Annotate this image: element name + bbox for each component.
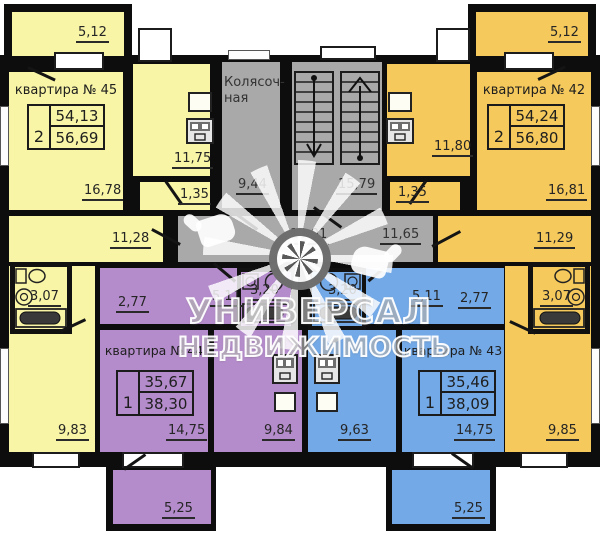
area-apt42-living: 16,81 — [546, 184, 587, 201]
window — [0, 348, 9, 424]
apt44-rooms-count: 1 — [118, 372, 140, 414]
window — [320, 46, 376, 60]
area-apt44-bath: 3,20 — [248, 284, 281, 301]
window — [0, 106, 9, 166]
area-apt43-kitchen: 9,63 — [338, 424, 371, 441]
apt45-total-area: 56,69 — [51, 127, 103, 148]
area-apt45-balcony: 5,12 — [76, 26, 109, 43]
window — [591, 106, 600, 166]
area-stairs: 15,79 — [336, 178, 377, 195]
area-apt44-living: 14,75 — [166, 424, 207, 441]
fridge-icon — [316, 392, 338, 412]
balcony-door-unit — [54, 52, 104, 70]
area-apt45-tambour: 1,35 — [178, 188, 211, 205]
fridge-icon — [388, 92, 412, 112]
apt44-living-area: 35,67 — [140, 372, 192, 393]
area-apt42-kitchen: 11,80 — [432, 140, 473, 157]
fridge-icon — [274, 392, 296, 412]
stove-icon — [272, 354, 298, 384]
window — [138, 28, 172, 62]
area-apt44-kitchen: 9,84 — [262, 424, 295, 441]
apt43-area-table: 1 35,46 38,09 — [418, 370, 496, 416]
apt43-total-area: 38,09 — [442, 393, 494, 414]
apt42-total-area: 56,80 — [511, 127, 563, 148]
area-apt43-hall: 2,77 — [458, 292, 491, 309]
area-apt45-bath: 3,07 — [28, 290, 61, 307]
area-apt44-hall: 2,77 — [116, 296, 149, 313]
apt42-rooms-count: 2 — [489, 106, 511, 148]
area-apt42-hall: 11,29 — [534, 232, 575, 249]
apt45-living-area: 54,13 — [51, 106, 103, 127]
area-apt43-balcony: 5,25 — [452, 502, 485, 519]
apt43-living-area: 35,46 — [442, 372, 494, 393]
window — [32, 452, 80, 468]
apt43-title: квартира № 43 — [402, 344, 504, 357]
area-apt42-bedroom: 9,85 — [546, 424, 579, 441]
apt45-rooms-count: 2 — [29, 106, 51, 148]
area-apt45-kitchen: 11,75 — [172, 152, 213, 169]
apt42-area-table: 2 54,24 56,80 — [487, 104, 565, 150]
apt42-title: квартира № 42 — [478, 84, 590, 98]
stove-icon — [386, 118, 414, 144]
apt43-rooms-count: 1 — [420, 372, 442, 414]
staircase-icon — [292, 66, 382, 176]
area-apt44-balcony: 5,25 — [162, 502, 195, 519]
area-apt43-bath: 3,20 — [326, 284, 359, 301]
apt44-total-area: 38,30 — [140, 393, 192, 414]
area-apt45-bedroom: 9,83 — [56, 424, 89, 441]
area-apt42-bath: 3,07 — [540, 290, 573, 307]
stove-icon — [186, 118, 214, 144]
fridge-icon — [188, 92, 212, 112]
apt44-title: квартира № 44 — [100, 344, 208, 357]
stove-icon — [314, 354, 340, 384]
window — [591, 348, 600, 424]
apt45-area-table: 2 54,13 56,69 — [27, 104, 105, 150]
balcony-door-unit — [504, 52, 554, 70]
area-apt42-balcony: 5,12 — [548, 26, 581, 43]
window — [436, 28, 470, 62]
area-apt44-corridor: 5,11 — [210, 290, 243, 307]
stroller-room-label: ная — [224, 92, 248, 106]
area-apt45-hall: 11,28 — [110, 232, 151, 249]
area-apt43-living: 14,75 — [454, 424, 495, 441]
window — [228, 50, 270, 60]
apt45-title: квартира № 45 — [10, 84, 122, 98]
area-corridor-right: 11,65 — [380, 228, 421, 245]
area-stroller: 9,44 — [236, 178, 269, 195]
area-apt45-living: 16,78 — [82, 184, 123, 201]
area-apt42-tambour: 1,35 — [396, 186, 429, 203]
area-apt43-corridor: 5,11 — [410, 290, 443, 307]
area-corridor-mid: 13,01 — [288, 228, 329, 245]
apt44-area-table: 1 35,67 38,30 — [116, 370, 194, 416]
apt42-living-area: 54,24 — [511, 106, 563, 127]
stroller-room-label: Колясоч- — [224, 76, 285, 90]
window — [520, 452, 568, 468]
floor-plan: 5,12 квартира № 45 2 54,13 56,69 16,78 1… — [0, 0, 600, 533]
